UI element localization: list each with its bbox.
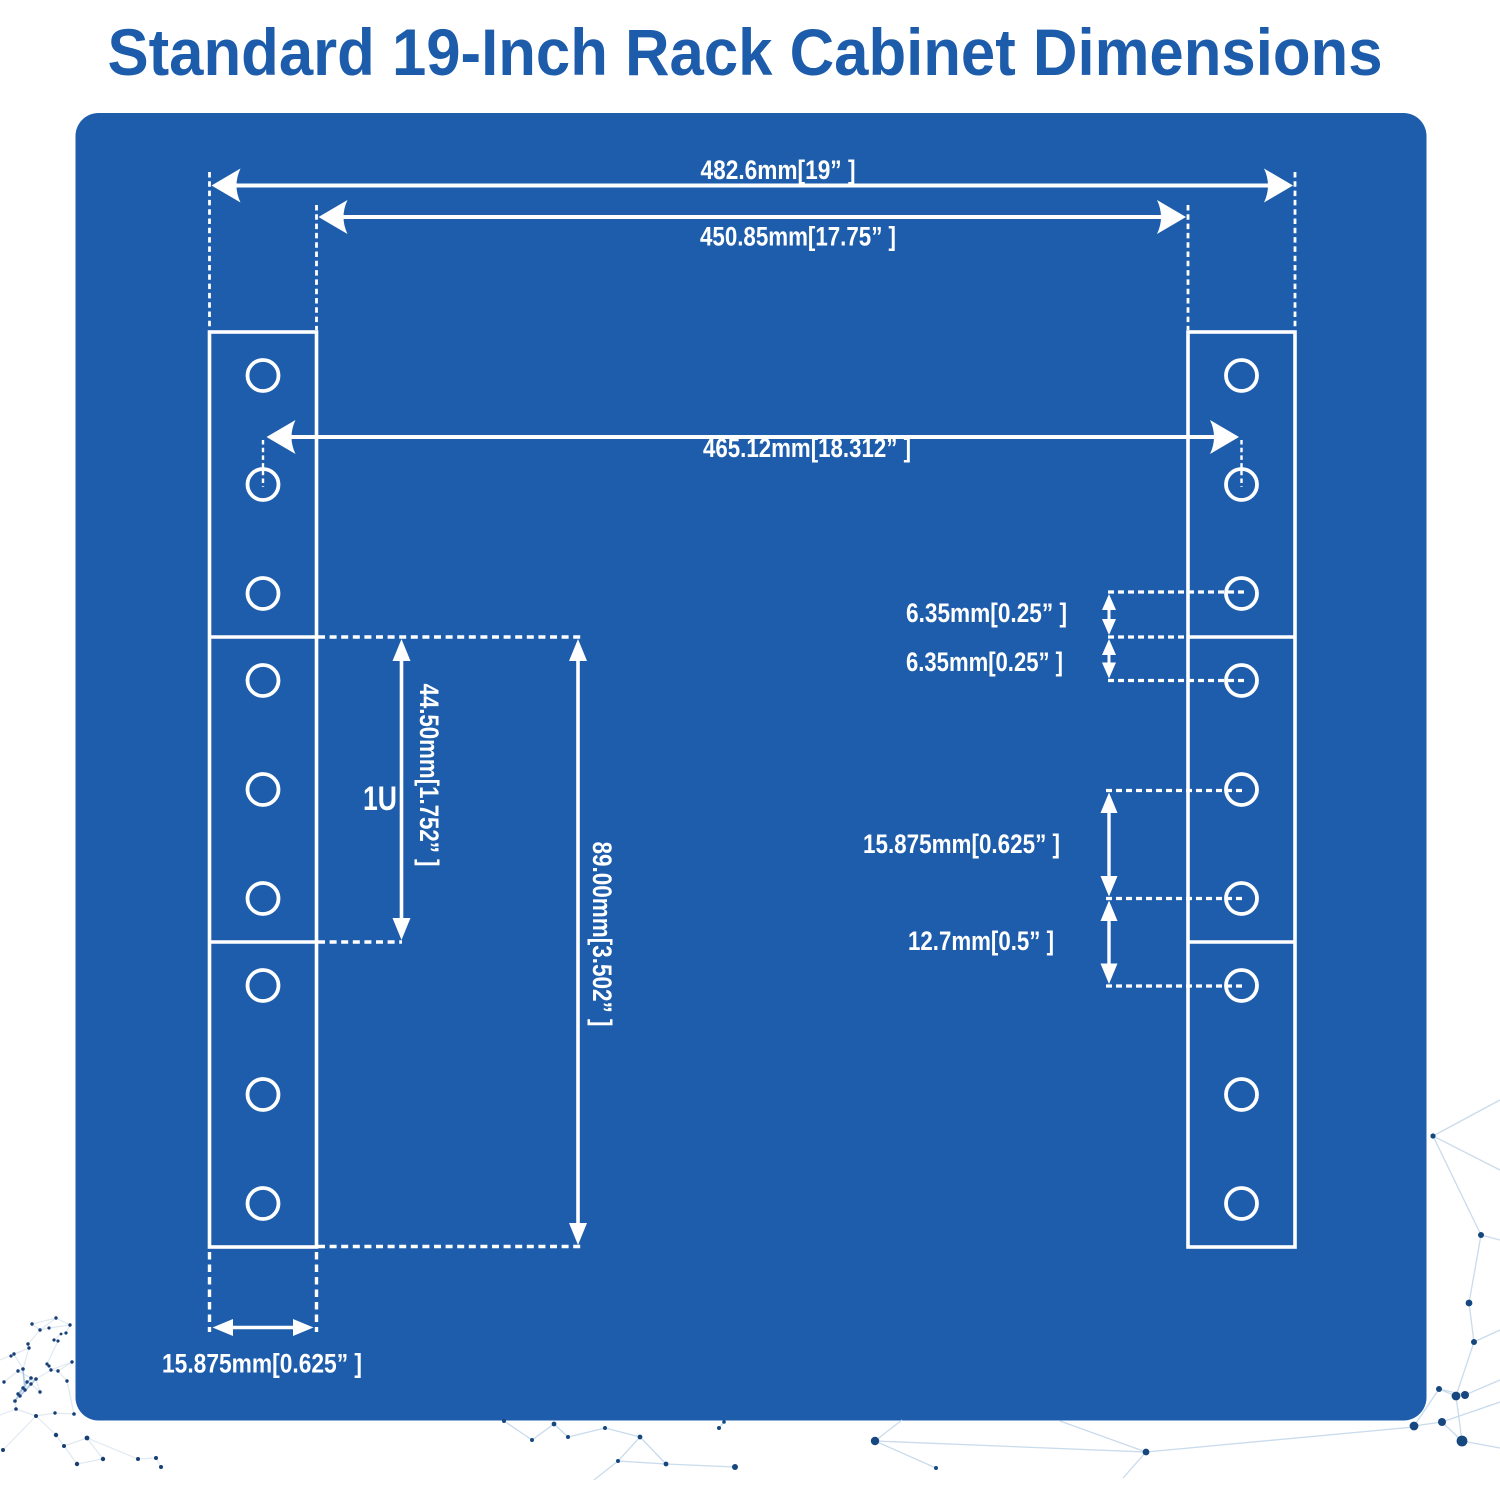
svg-text:89.00mm[3.502” ]: 89.00mm[3.502” ] bbox=[587, 842, 617, 1027]
svg-text:482.6mm[19” ]: 482.6mm[19” ] bbox=[701, 155, 856, 185]
svg-text:6.35mm[0.25” ]: 6.35mm[0.25” ] bbox=[906, 598, 1067, 628]
svg-text:12.7mm[0.5” ]: 12.7mm[0.5” ] bbox=[908, 926, 1054, 956]
svg-text:Standard 19-Inch Rack Cabinet: Standard 19-Inch Rack Cabinet Dimensions bbox=[108, 15, 1383, 89]
svg-text:15.875mm[0.625” ]: 15.875mm[0.625” ] bbox=[162, 1349, 362, 1379]
svg-text:465.12mm[18.312” ]: 465.12mm[18.312” ] bbox=[703, 433, 911, 463]
svg-text:6.35mm[0.25” ]: 6.35mm[0.25” ] bbox=[906, 647, 1063, 677]
svg-text:44.50mm[1.752” ]: 44.50mm[1.752” ] bbox=[414, 684, 444, 867]
svg-text:15.875mm[0.625” ]: 15.875mm[0.625” ] bbox=[863, 829, 1060, 859]
svg-text:450.85mm[17.75” ]: 450.85mm[17.75” ] bbox=[700, 222, 896, 252]
svg-text:1U: 1U bbox=[363, 780, 397, 818]
